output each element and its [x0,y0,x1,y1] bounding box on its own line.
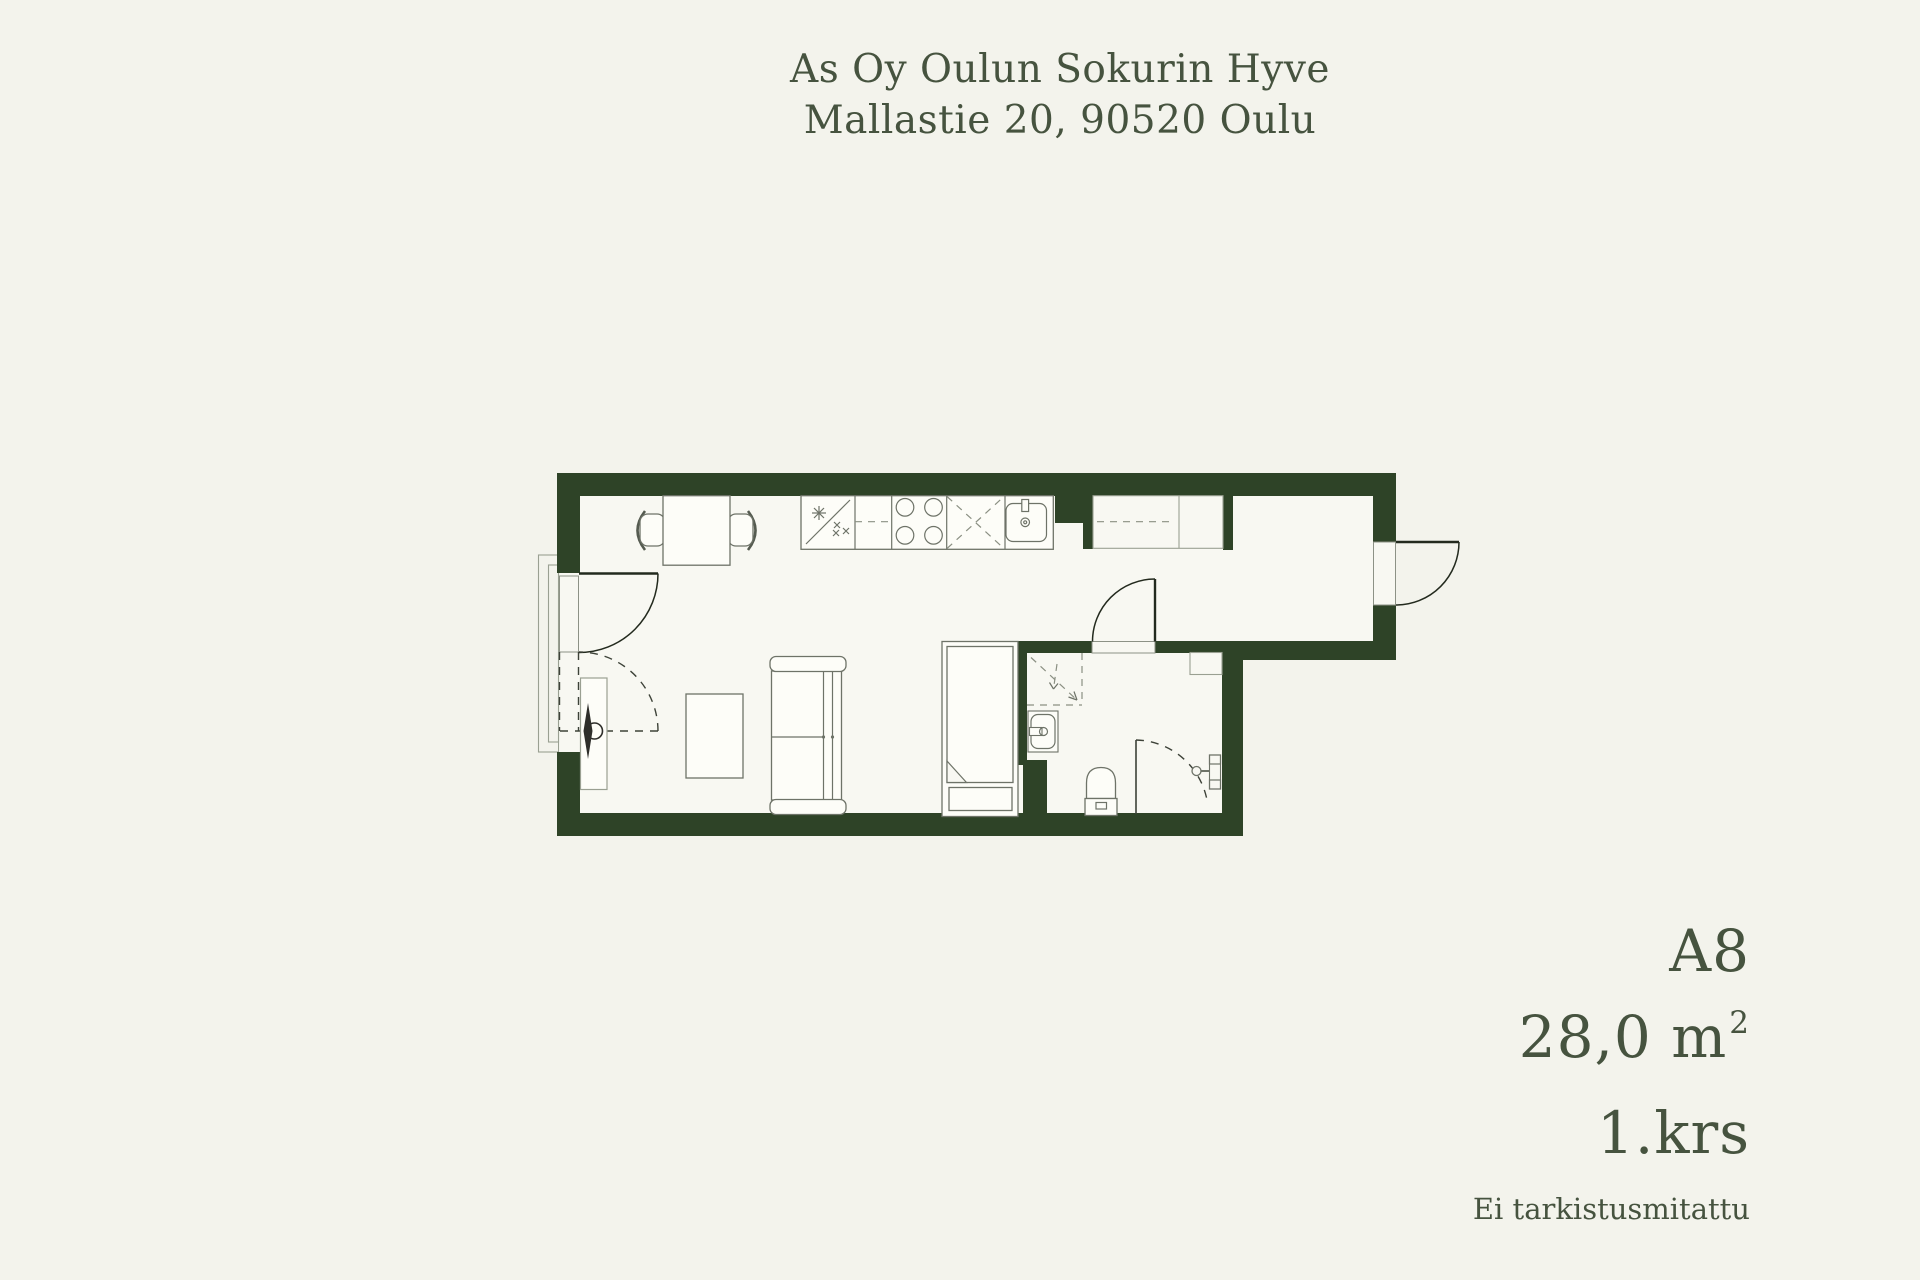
floor-plan [530,455,1480,855]
plan-title: As Oy Oulun Sokurin Hyve Mallastie 20, 9… [760,44,1360,146]
bathroom-sink [1028,711,1058,752]
unit-area: 28,0 m2 [1473,994,1750,1090]
coffee-table [686,694,743,778]
building-address: Mallastie 20, 90520 Oulu [760,95,1360,146]
unit-info: A8 28,0 m2 1.krs Ei tarkistusmitattu [1473,908,1750,1226]
dining-chair [638,511,666,550]
toilet [1085,768,1117,816]
unit-area-superscript: 2 [1729,1005,1750,1041]
entrance-landing [539,555,559,752]
unit-floor: 1.krs [1473,1090,1750,1176]
building-name: As Oy Oulun Sokurin Hyve [760,44,1360,95]
unit-area-value: 28,0 m [1519,1003,1728,1071]
exterior-door [1374,542,1460,605]
floor-plan-drawing [530,455,1480,855]
dining-table [663,496,730,566]
bed [942,642,1018,817]
unit-note: Ei tarkistusmitattu [1473,1192,1750,1226]
sofa [770,657,846,815]
unit-id: A8 [1473,908,1750,994]
dining-chair [728,511,756,550]
